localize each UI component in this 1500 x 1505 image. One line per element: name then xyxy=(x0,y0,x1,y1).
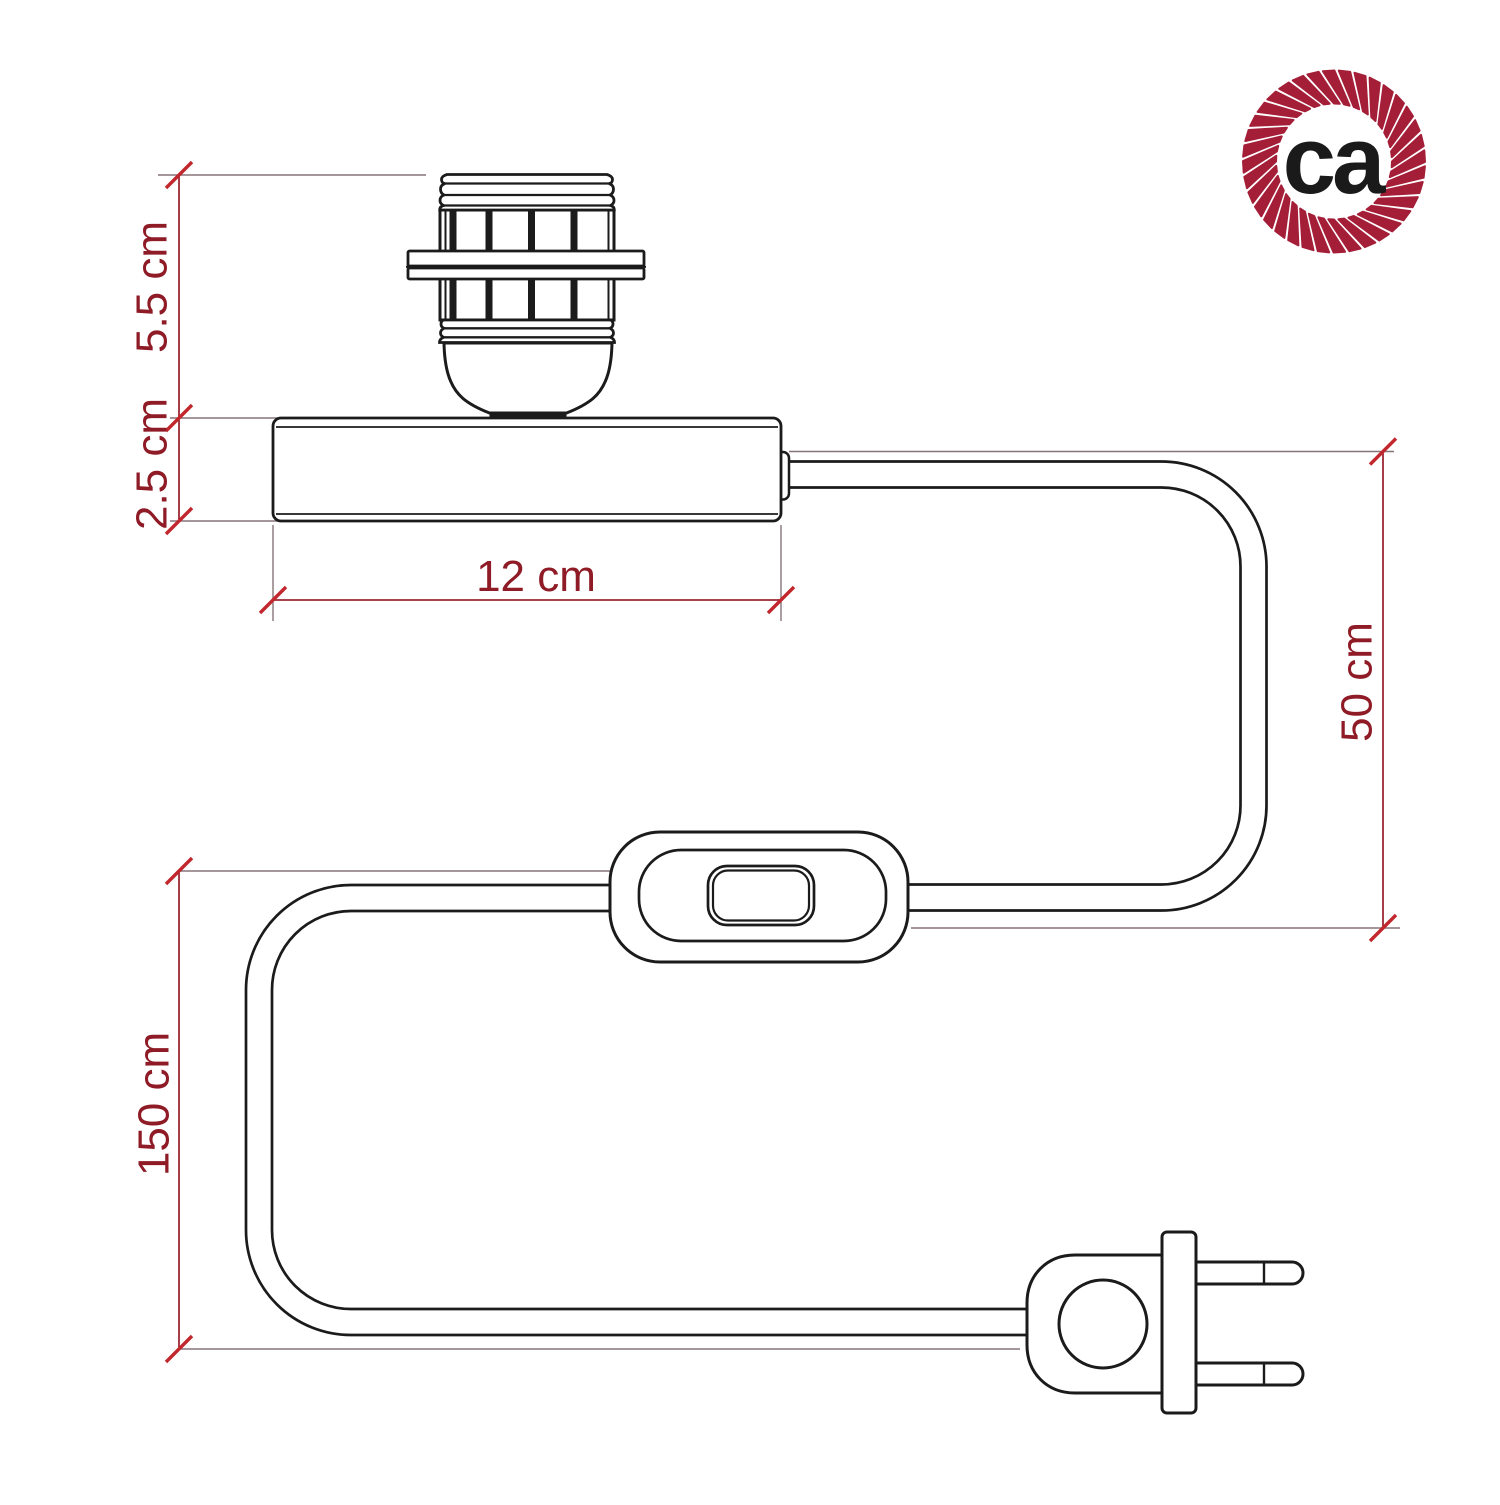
svg-text:12 cm: 12 cm xyxy=(476,552,596,601)
svg-text:ca: ca xyxy=(1283,107,1386,214)
svg-text:50 cm: 50 cm xyxy=(1333,622,1382,742)
svg-text:150 cm: 150 cm xyxy=(130,1032,179,1176)
svg-text:5.5 cm: 5.5 cm xyxy=(128,221,177,353)
svg-text:2.5 cm: 2.5 cm xyxy=(128,398,177,530)
